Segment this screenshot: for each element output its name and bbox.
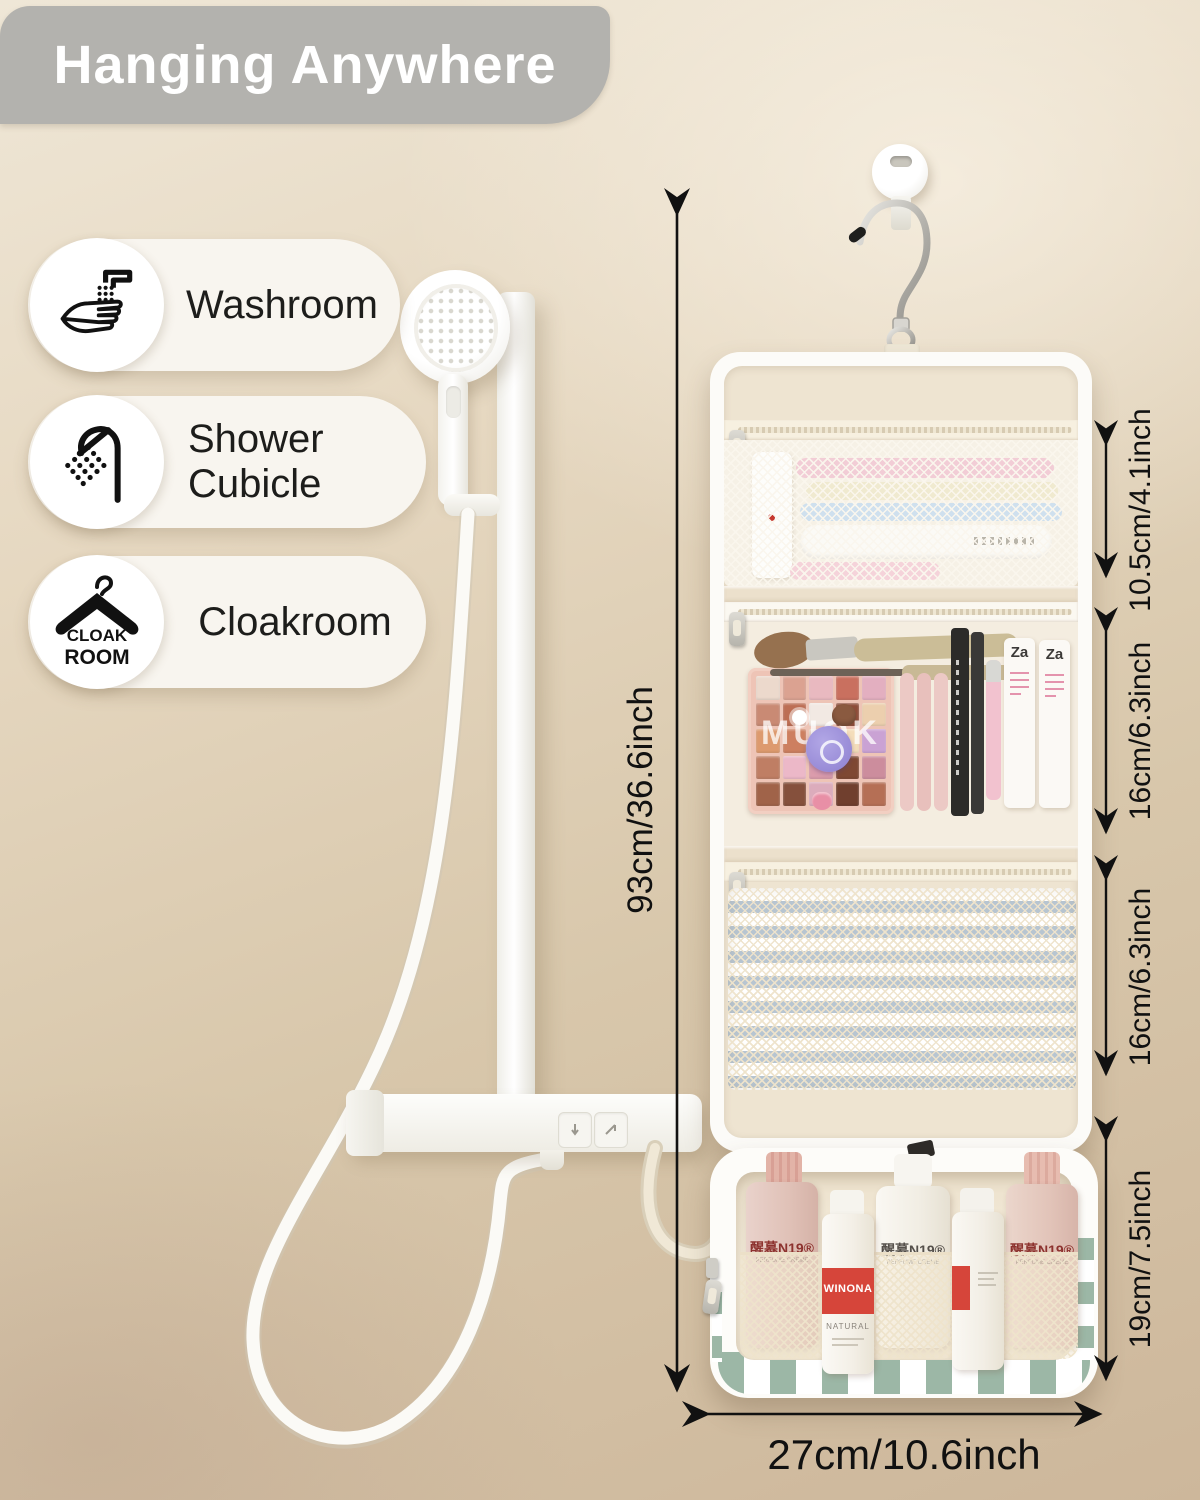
zipper-makeup-pocket	[724, 602, 1078, 622]
mascara-black	[951, 628, 969, 816]
bottle2-text-line	[832, 1338, 864, 1340]
zipper-top-pocket	[724, 420, 1078, 440]
za-logo: Za	[1004, 644, 1035, 661]
washroom-disc	[30, 238, 164, 372]
zipper-mesh-pocket	[724, 862, 1078, 882]
za-tube-2: Za	[1039, 640, 1070, 808]
bottle4-text-line	[978, 1278, 994, 1280]
dim-bag-width: 27cm/10.6inch	[767, 1431, 1040, 1479]
top-mesh-pocket	[724, 440, 1078, 586]
fabric-divider-2	[724, 846, 1078, 862]
za-tube-1: Za	[1004, 638, 1035, 808]
eyeshadow-palette: MUOK	[748, 668, 894, 814]
za-text-lines	[1010, 672, 1029, 700]
shower-head-face	[414, 284, 498, 372]
shower-icon	[54, 419, 140, 505]
bag-checker-side-right	[1076, 1238, 1094, 1360]
bottle4-red-sliver	[952, 1266, 970, 1310]
bottle2-label: WINONA	[822, 1283, 874, 1295]
toothbrush-pink	[796, 458, 1054, 478]
eyeshadow-cell	[783, 676, 807, 700]
eyeshadow-cell	[756, 782, 780, 806]
wall-hook-mount	[872, 144, 928, 200]
dim-total-height: 93cm/36.6inch	[621, 686, 661, 914]
product-infographic: Hanging Anywhere Washroom	[0, 0, 1200, 1500]
cosmetic-stick-pink	[790, 562, 940, 580]
eyeshadow-cell	[756, 756, 780, 780]
eyeshadow-cell	[783, 782, 807, 806]
dim-pocket1-height: 10.5cm/4.1inch	[1124, 408, 1158, 611]
eyeshadow-cell	[862, 782, 886, 806]
shower-elbow	[444, 494, 500, 516]
palette-sticker-flower	[792, 710, 807, 725]
valve-button-1	[558, 1112, 592, 1148]
za-text-lines-2	[1045, 674, 1064, 702]
cloakroom-disc: CLOAK ROOM	[30, 555, 164, 689]
bag-mesh-pocket-2	[866, 1252, 956, 1359]
valve-button-2	[594, 1112, 628, 1148]
wall-hook-stem	[891, 196, 911, 230]
handwash-icon	[54, 262, 140, 348]
hanger-icon-text-1: CLOAK	[30, 627, 164, 644]
wall-hook-slot	[890, 156, 912, 167]
bottle3-cap	[894, 1154, 932, 1188]
bottle2-red-band: WINONA	[822, 1268, 874, 1314]
palette-sticker-strawberry	[812, 792, 832, 810]
eyeshadow-cell	[862, 756, 886, 780]
shower-rail	[497, 292, 535, 1104]
eyeshadow-cell	[783, 756, 807, 780]
shower-valve-endcap	[346, 1090, 384, 1156]
lipstick-1	[900, 673, 914, 811]
dim-pocket3-height: 16cm/6.3inch	[1124, 888, 1158, 1066]
pen-silver-cap	[986, 660, 1001, 682]
bottle4-pump	[952, 1212, 1004, 1370]
palette-sticker-swirl	[820, 740, 844, 764]
eyeshadow-cell	[836, 782, 860, 806]
location-pill-cloakroom: CLOAK ROOM Cloakroom	[28, 556, 426, 688]
bottle5-cap	[1024, 1152, 1060, 1188]
dim-bag-height: 19cm/7.5inch	[1124, 1170, 1158, 1348]
bottle1-cap	[766, 1152, 802, 1186]
banner-title: Hanging Anywhere	[53, 34, 556, 96]
bottle4-text-line	[978, 1284, 996, 1286]
lipstick-3	[934, 673, 948, 811]
location-pill-washroom: Washroom	[28, 239, 400, 371]
bottle2-sublabel: NATURAL	[822, 1322, 874, 1331]
banner: Hanging Anywhere	[0, 6, 610, 124]
eyeliner-black	[971, 632, 984, 814]
bag-mesh-pocket-1	[740, 1252, 828, 1359]
eyeshadow-cell	[862, 676, 886, 700]
zipper-pull-makeup	[729, 612, 745, 646]
eyeshadow-cell	[756, 676, 780, 700]
shower-cubicle-disc	[30, 395, 164, 529]
shower-cubicle-label: Shower Cubicle	[188, 396, 402, 528]
bottle2-text-line	[832, 1344, 858, 1346]
bag-zipper-slider	[706, 1258, 718, 1278]
cloakroom-label: Cloakroom	[188, 556, 402, 688]
striped-mesh-pocket	[728, 888, 1076, 1090]
toothbrush-blue	[800, 503, 1062, 521]
washroom-label: Washroom	[188, 239, 376, 371]
bottle4-text-line	[978, 1272, 998, 1274]
fabric-divider-1	[724, 586, 1078, 602]
shower-handle-button	[446, 386, 461, 418]
palette-sticker-bear	[832, 704, 856, 726]
dim-pocket2-height: 16cm/6.3inch	[1124, 642, 1158, 820]
eyeshadow-cell	[809, 676, 833, 700]
valve-hose-connector	[540, 1150, 564, 1170]
lipstick-2	[917, 673, 931, 811]
toothpaste-print	[974, 537, 1034, 545]
location-pill-shower-cubicle: Shower Cubicle	[28, 396, 426, 528]
tube-red-dot	[768, 514, 775, 521]
za-logo-2: Za	[1039, 646, 1070, 663]
hanger-icon-text-2: ROOM	[30, 647, 164, 668]
bag-mesh-pocket-3	[996, 1252, 1078, 1359]
bottle2-pump-winona: WINONA NATURAL	[822, 1214, 874, 1374]
eyeshadow-cell	[836, 676, 860, 700]
toothbrush-yellow	[806, 482, 1058, 500]
mascara-print	[956, 660, 959, 780]
